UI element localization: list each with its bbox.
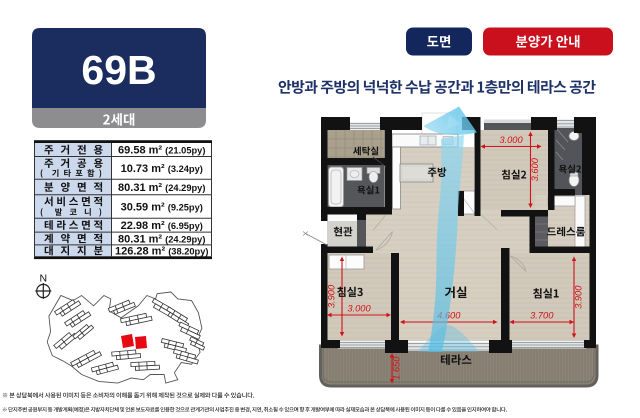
svg-text:3.900: 3.900 — [327, 284, 337, 308]
svg-text:N: N — [40, 273, 48, 285]
svg-text:3.700: 3.700 — [530, 311, 554, 321]
svg-text:80.31 m² (24.29py): 80.31 m² (24.29py) — [118, 233, 205, 245]
svg-text:10.73 m² (3.24py): 10.73 m² (3.24py) — [121, 163, 203, 175]
svg-text:80.31 m² (24.29py): 80.31 m² (24.29py) — [118, 182, 205, 194]
svg-text:69.58 m² (21.05py): 69.58 m² (21.05py) — [118, 145, 205, 157]
svg-text:3.600: 3.600 — [530, 157, 540, 181]
svg-text:1.650: 1.650 — [392, 356, 402, 380]
svg-text:126.28 m² (38.20py): 126.28 m² (38.20py) — [115, 246, 209, 258]
svg-text:3.000: 3.000 — [499, 135, 523, 145]
svg-text:3.900: 3.900 — [574, 285, 584, 309]
svg-text:3.000: 3.000 — [347, 304, 371, 314]
svg-text:69B: 69B — [81, 47, 156, 93]
svg-text:22.98 m² (6.95py): 22.98 m² (6.95py) — [121, 220, 203, 232]
svg-text:30.59 m² (9.25py): 30.59 m² (9.25py) — [121, 201, 203, 213]
